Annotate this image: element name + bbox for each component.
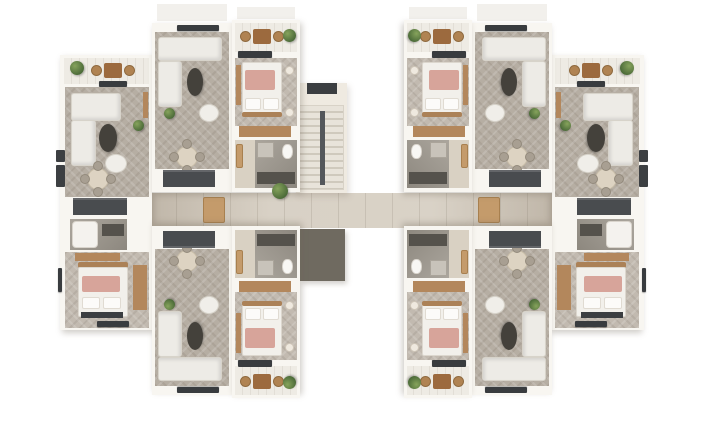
outer-bed-throw xyxy=(82,276,120,292)
balcony-chair-icon xyxy=(240,31,251,42)
middle-bath-washer xyxy=(430,142,447,158)
middle-wardrobe xyxy=(236,313,241,353)
inner-dining-set xyxy=(170,244,204,278)
middle-nightstand-lamp xyxy=(285,343,294,352)
balcony-table xyxy=(253,29,271,44)
outer-kitchen-counter xyxy=(73,198,127,215)
dining-chair-icon xyxy=(601,187,611,197)
inner-dining-set xyxy=(170,140,204,174)
balcony-chair-icon xyxy=(453,376,464,387)
dining-chair-icon xyxy=(80,174,90,184)
outer-wardrobe xyxy=(133,265,147,310)
middle-bed-headboard xyxy=(422,301,462,306)
middle-balcony-plant-icon xyxy=(408,29,421,42)
outer-bed-pillow xyxy=(82,297,100,309)
middle-bed-pillow xyxy=(443,308,459,320)
middle-bed-pillow xyxy=(263,308,279,320)
inner-armchair xyxy=(199,296,219,314)
outer-dining-set xyxy=(589,162,623,196)
inner-armchair xyxy=(199,104,219,122)
middle-toilet xyxy=(411,144,422,159)
outer-coffee-table xyxy=(99,124,117,152)
roof-shadow-inner xyxy=(157,4,227,21)
inner-window xyxy=(485,387,527,393)
outer-bathtub xyxy=(606,221,632,248)
outer-bath-vanity xyxy=(580,224,602,236)
middle-nightstand-lamp xyxy=(410,301,419,310)
outer-bathtub xyxy=(72,221,98,248)
dining-chair-icon xyxy=(169,152,179,162)
middle-window xyxy=(432,360,466,367)
corridor-plant-icon xyxy=(272,183,288,199)
middle-entry-door xyxy=(236,144,243,168)
outer-window-bottom xyxy=(97,321,129,327)
dining-chair-icon xyxy=(499,152,509,162)
outer-balcony-plant-icon xyxy=(70,61,84,75)
balcony-chair-icon xyxy=(124,65,135,76)
dining-chair-icon xyxy=(601,161,611,171)
middle-bed-headboard xyxy=(242,301,282,306)
middle-nightstand-lamp xyxy=(285,66,294,75)
middle-nightstand-lamp xyxy=(410,108,419,117)
middle-bath-counter xyxy=(409,172,447,184)
outer-plant-icon xyxy=(560,120,571,131)
middle-entry-door xyxy=(461,250,468,274)
ac-unit xyxy=(639,150,648,162)
dining-chair-icon xyxy=(525,256,535,266)
outer-bed-pillow xyxy=(583,297,601,309)
outer-sofa-top xyxy=(71,93,121,121)
outer-bed xyxy=(78,267,128,317)
middle-entry-door xyxy=(461,144,468,168)
outer-window-side xyxy=(58,268,62,292)
inner-armchair xyxy=(485,296,505,314)
dining-chair-icon xyxy=(106,174,116,184)
balcony-table xyxy=(104,63,122,78)
middle-window xyxy=(432,51,466,58)
outer-coffee-table xyxy=(587,124,605,152)
balcony-table xyxy=(433,374,451,389)
outer-dining-set xyxy=(81,162,115,196)
middle-wardrobe xyxy=(463,65,468,105)
roof-shadow-inner xyxy=(477,4,547,21)
inner-window xyxy=(485,25,527,31)
middle-balcony-set xyxy=(424,27,460,47)
inner-plant-icon xyxy=(529,108,540,119)
middle-bed-pillow xyxy=(245,308,261,320)
inner-window xyxy=(177,25,219,31)
roof-shadow-middle xyxy=(409,7,467,19)
inner-sofa-top xyxy=(482,357,546,381)
balcony-chair-icon xyxy=(602,65,613,76)
outer-bath-vanity xyxy=(102,224,124,236)
middle-toilet xyxy=(411,259,422,274)
outer-plant-icon xyxy=(133,120,144,131)
outer-tv-board xyxy=(143,92,148,118)
inner-plant-icon xyxy=(164,108,175,119)
inner-kitchen-counter xyxy=(489,170,541,187)
middle-wardrobe xyxy=(236,65,241,105)
inner-sofa-top xyxy=(482,37,546,61)
middle-dresser xyxy=(413,126,465,137)
middle-bed-throw xyxy=(245,70,275,90)
middle-toilet xyxy=(282,144,293,159)
middle-balcony-plant-icon xyxy=(283,29,296,42)
outer-wardrobe xyxy=(557,265,571,310)
dining-chair-icon xyxy=(614,174,624,184)
middle-bath-counter xyxy=(257,234,295,246)
middle-bed-throw xyxy=(429,328,459,348)
dining-chair-icon xyxy=(93,161,103,171)
inner-sofa-top xyxy=(158,357,222,381)
outer-bed-foot-bench xyxy=(581,312,623,318)
inner-dining-set xyxy=(500,244,534,278)
middle-nightstand-lamp xyxy=(285,108,294,117)
dining-chair-icon xyxy=(588,174,598,184)
outer-balcony-plant-icon xyxy=(620,61,634,75)
wing-left xyxy=(57,0,352,439)
middle-entry-door xyxy=(236,250,243,274)
inner-window xyxy=(177,387,219,393)
middle-window xyxy=(238,360,272,367)
inner-coffee-table xyxy=(501,322,517,350)
floor-plan-stage xyxy=(0,0,727,439)
middle-dresser xyxy=(413,281,465,292)
wing-right xyxy=(352,0,647,439)
middle-balcony-plant-icon xyxy=(283,376,296,389)
inner-coffee-table xyxy=(187,68,203,96)
balcony-chair-icon xyxy=(420,376,431,387)
balcony-table xyxy=(433,29,451,44)
inner-kitchen-counter xyxy=(163,231,215,248)
inner-kitchen-counter xyxy=(163,170,215,187)
outer-bedroom-shelf xyxy=(584,253,629,261)
inner-armchair xyxy=(485,104,505,122)
inner-sofa-top xyxy=(158,37,222,61)
dining-chair-icon xyxy=(169,256,179,266)
middle-dresser xyxy=(239,126,291,137)
middle-bath-washer xyxy=(257,260,274,276)
inner-kitchen-counter xyxy=(489,231,541,248)
ac-unit xyxy=(56,150,65,162)
ac-unit xyxy=(56,165,65,187)
outer-bed xyxy=(576,267,626,317)
inner-coffee-table xyxy=(501,68,517,96)
inner-sofa-left xyxy=(522,311,546,357)
outer-balcony-set xyxy=(95,61,131,81)
outer-window-bottom xyxy=(575,321,607,327)
dining-chair-icon xyxy=(195,152,205,162)
balcony-chair-icon xyxy=(453,31,464,42)
unit-group-bottom xyxy=(152,226,300,398)
roof-shadow-middle xyxy=(237,7,295,19)
middle-bed-throw xyxy=(245,328,275,348)
middle-nightstand-lamp xyxy=(410,66,419,75)
middle-dresser xyxy=(239,281,291,292)
dining-chair-icon xyxy=(499,256,509,266)
inner-plant-icon xyxy=(164,299,175,310)
inner-coffee-table xyxy=(187,322,203,350)
middle-balcony-set xyxy=(244,27,280,47)
dining-chair-icon xyxy=(512,269,522,279)
ac-unit xyxy=(639,165,648,187)
unit-group-top xyxy=(404,20,552,192)
inner-plant-icon xyxy=(529,299,540,310)
middle-bath-washer xyxy=(257,142,274,158)
middle-nightstand-lamp xyxy=(410,343,419,352)
outer-window-side xyxy=(642,268,646,292)
outer-sofa-left xyxy=(71,120,96,166)
dining-chair-icon xyxy=(93,187,103,197)
inner-sofa-left xyxy=(158,61,182,107)
outer-bed-throw xyxy=(584,276,622,292)
unit-group-top xyxy=(152,20,300,192)
dining-chair-icon xyxy=(182,269,192,279)
middle-bed-headboard xyxy=(422,112,462,117)
outer-balcony-set xyxy=(573,61,609,81)
middle-bed-pillow xyxy=(425,308,441,320)
outer-tv-board xyxy=(556,92,561,118)
outer-bedroom-shelf xyxy=(75,253,120,261)
middle-bed-pillow xyxy=(425,98,441,110)
middle-window xyxy=(238,51,272,58)
dining-chair-icon xyxy=(182,139,192,149)
middle-balcony-set xyxy=(244,371,280,391)
middle-bed-pillow xyxy=(245,98,261,110)
unit-group-bottom xyxy=(404,226,552,398)
middle-bath-washer xyxy=(430,260,447,276)
dining-chair-icon xyxy=(195,256,205,266)
dining-chair-icon xyxy=(525,152,535,162)
middle-balcony-plant-icon xyxy=(408,376,421,389)
middle-bed-pillow xyxy=(443,98,459,110)
middle-nightstand-lamp xyxy=(285,301,294,310)
balcony-table xyxy=(582,63,600,78)
inner-dining-set xyxy=(500,140,534,174)
outer-sofa-top xyxy=(583,93,633,121)
outer-bed-pillow xyxy=(103,297,121,309)
outer-bed-foot-bench xyxy=(81,312,123,318)
middle-bath-counter xyxy=(257,172,295,184)
middle-bed-throw xyxy=(429,70,459,90)
outer-kitchen-counter xyxy=(577,198,631,215)
balcony-chair-icon xyxy=(240,376,251,387)
middle-toilet xyxy=(282,259,293,274)
middle-bed-headboard xyxy=(242,112,282,117)
balcony-chair-icon xyxy=(569,65,580,76)
middle-balcony-set xyxy=(424,371,460,391)
outer-sofa-left xyxy=(608,120,633,166)
inner-sofa-left xyxy=(158,311,182,357)
middle-wardrobe xyxy=(463,313,468,353)
balcony-chair-icon xyxy=(420,31,431,42)
dining-chair-icon xyxy=(512,139,522,149)
balcony-table xyxy=(253,374,271,389)
middle-bed-pillow xyxy=(263,98,279,110)
middle-bath-counter xyxy=(409,234,447,246)
outer-bed-pillow xyxy=(604,297,622,309)
inner-sofa-left xyxy=(522,61,546,107)
balcony-chair-icon xyxy=(91,65,102,76)
